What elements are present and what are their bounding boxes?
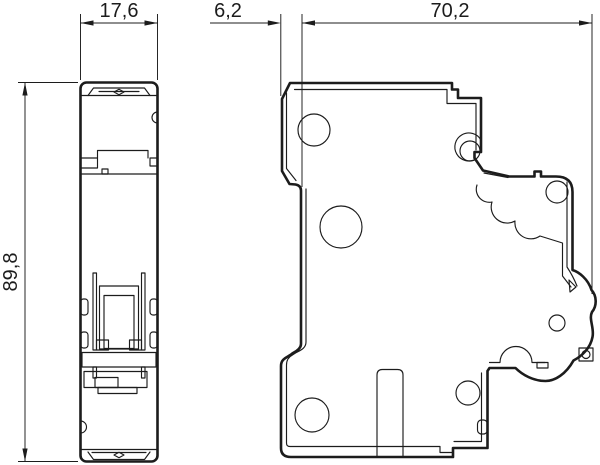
arrowhead-up-icon	[22, 83, 27, 96]
hole-circle	[456, 381, 480, 405]
side-view	[281, 83, 596, 457]
dimension-width: 17,6	[81, 0, 158, 80]
arrowhead-down-icon	[22, 449, 27, 462]
arrowhead-right-icon	[579, 20, 592, 25]
left-post	[93, 273, 97, 350]
crossbar	[82, 353, 156, 368]
hole-circle	[546, 181, 568, 203]
scalloped-chamber-line	[476, 185, 571, 287]
terminal-hook	[455, 133, 481, 161]
dimension-height-value: 89,8	[0, 253, 22, 292]
toggle-switch-assembly	[81, 273, 158, 394]
right-post	[142, 273, 146, 350]
arrowhead-left-icon	[302, 20, 315, 25]
side-view-outline	[281, 83, 596, 457]
arrowhead-right-icon	[145, 20, 158, 25]
clamp-details	[569, 280, 593, 361]
drawing-svg: 17,6 6,2 70,2 89,8	[0, 0, 600, 465]
arrowhead-left-icon	[81, 20, 94, 25]
dimension-width-value: 17,6	[100, 0, 139, 22]
dimension-offset-value: 6,2	[214, 0, 242, 22]
bottom-clip-detail	[81, 450, 158, 460]
top-clip-detail	[81, 88, 158, 96]
hole-circle	[295, 398, 329, 432]
hole-circle	[298, 114, 330, 146]
dimension-depth-value: 70,2	[431, 0, 470, 22]
dimensional-drawing-canvas: 17,6 6,2 70,2 89,8	[0, 0, 600, 465]
upper-terminal-detail	[81, 151, 158, 175]
din-rail-slot	[377, 370, 403, 458]
dimension-depth: 70,2	[302, 0, 592, 294]
arrowhead-right-icon	[268, 20, 281, 25]
dimension-height: 89,8	[0, 83, 78, 462]
hole-circle	[320, 206, 362, 248]
hole-circle	[549, 315, 565, 331]
extension-lines	[18, 83, 78, 462]
dimension-offset: 6,2	[210, 0, 302, 187]
inner-contour-lines	[287, 90, 578, 453]
front-view-outline	[81, 83, 158, 462]
extension-lines	[281, 14, 302, 187]
clip-diamond	[114, 452, 124, 457]
holes	[295, 114, 568, 432]
front-view	[81, 83, 158, 462]
